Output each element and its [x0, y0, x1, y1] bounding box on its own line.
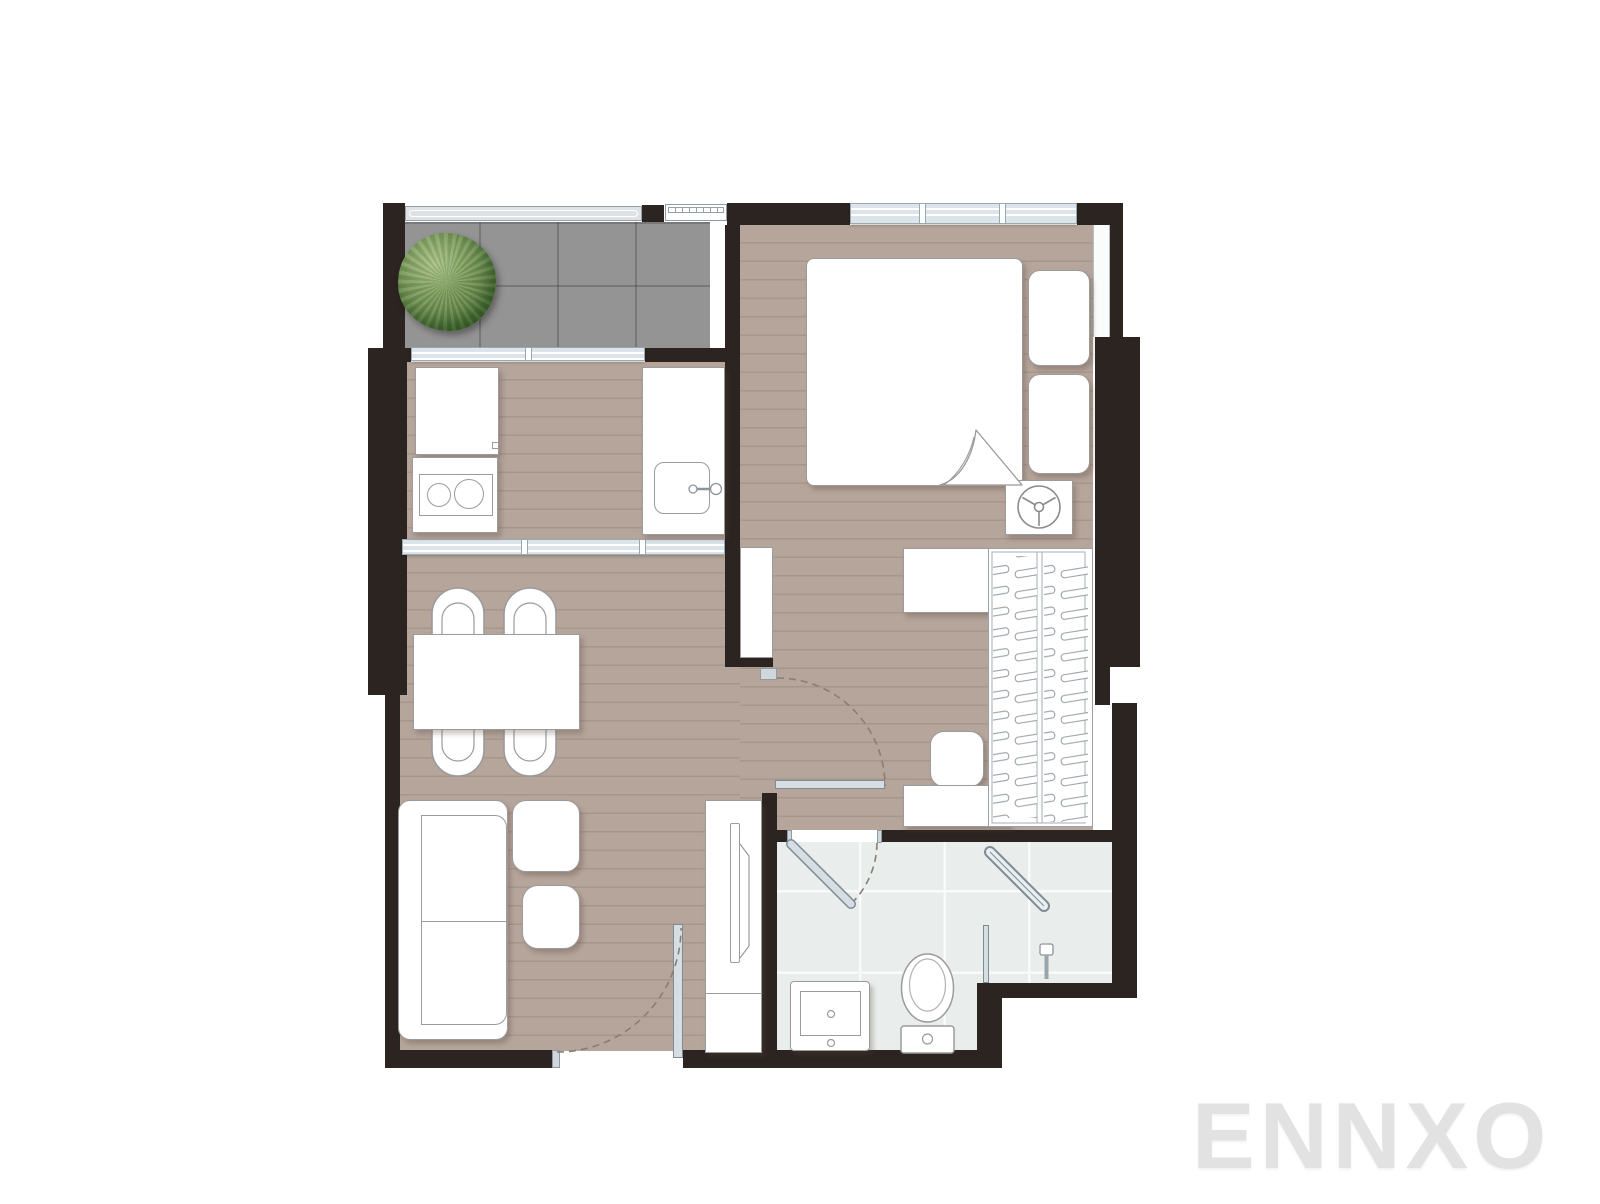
sofa-seat	[421, 815, 507, 1025]
railing-inner-line	[409, 210, 638, 217]
ac-grille	[668, 207, 724, 213]
refrigerator	[415, 367, 499, 455]
tv-console	[705, 800, 762, 1053]
wall-segment	[385, 1050, 552, 1068]
bathroom-door-jamb	[787, 830, 792, 843]
stool	[930, 731, 984, 787]
fridge-handle	[492, 442, 499, 449]
tv-icon	[730, 823, 740, 963]
watermark: ENNXO	[1192, 1082, 1551, 1190]
double-bed	[806, 258, 1023, 486]
sofa-cushion-line	[422, 921, 506, 922]
wall-segment	[368, 348, 407, 695]
tree-icon	[398, 233, 496, 331]
bathroom-notch	[1002, 996, 1114, 1056]
balcony-sliding-door	[411, 347, 645, 361]
bedroom-east-window	[1093, 225, 1110, 337]
sink-counter	[642, 367, 725, 535]
wall-segment	[398, 348, 411, 362]
bedroom-window	[850, 203, 1077, 224]
wall-segment	[1112, 703, 1137, 998]
vanity-sink	[790, 981, 870, 1051]
wall-segment	[1095, 337, 1140, 667]
ac-unit-icon	[665, 204, 727, 221]
entrance-jamb	[552, 1050, 560, 1068]
wall-cabinet	[740, 547, 773, 658]
wall-segment	[1095, 660, 1110, 705]
vanity-basin	[800, 991, 861, 1036]
cooktop	[419, 474, 493, 516]
stove-counter	[412, 457, 498, 533]
window-mullion	[521, 540, 528, 554]
wall-segment	[882, 830, 1137, 842]
wall-segment	[1077, 203, 1123, 225]
sink-basin	[654, 462, 710, 514]
window-mullion	[639, 540, 646, 554]
wardrobe	[988, 548, 1093, 827]
console-divider	[706, 993, 761, 994]
nightstand	[1028, 374, 1090, 474]
wall-segment	[645, 348, 727, 362]
dining-table	[413, 634, 580, 730]
fan-stand	[1005, 480, 1073, 535]
wall-segment	[762, 830, 787, 842]
kitchen-sliding-partition	[402, 539, 725, 555]
wall-segment	[642, 205, 664, 222]
side-table	[522, 885, 580, 949]
burner-icon	[454, 479, 484, 509]
window-mullion	[919, 204, 926, 223]
entrance-door-panel	[673, 924, 683, 1058]
coffee-table	[512, 800, 580, 872]
window-mullion	[525, 348, 532, 360]
wall-segment	[1110, 225, 1123, 337]
bathroom-door-jamb	[877, 830, 882, 843]
wall-segment	[727, 203, 850, 225]
nightstand	[1028, 270, 1090, 366]
window-mullion	[999, 204, 1006, 223]
sofa	[398, 800, 508, 1040]
floor-plan-canvas: ENNXO	[0, 0, 1600, 1204]
bedroom-door-panel	[775, 780, 885, 789]
balcony-railing	[405, 206, 642, 221]
burner-icon	[427, 483, 451, 507]
shower-fixed-panel	[983, 925, 989, 983]
wall-segment	[725, 225, 740, 667]
bedroom-door-jamb	[760, 668, 777, 680]
